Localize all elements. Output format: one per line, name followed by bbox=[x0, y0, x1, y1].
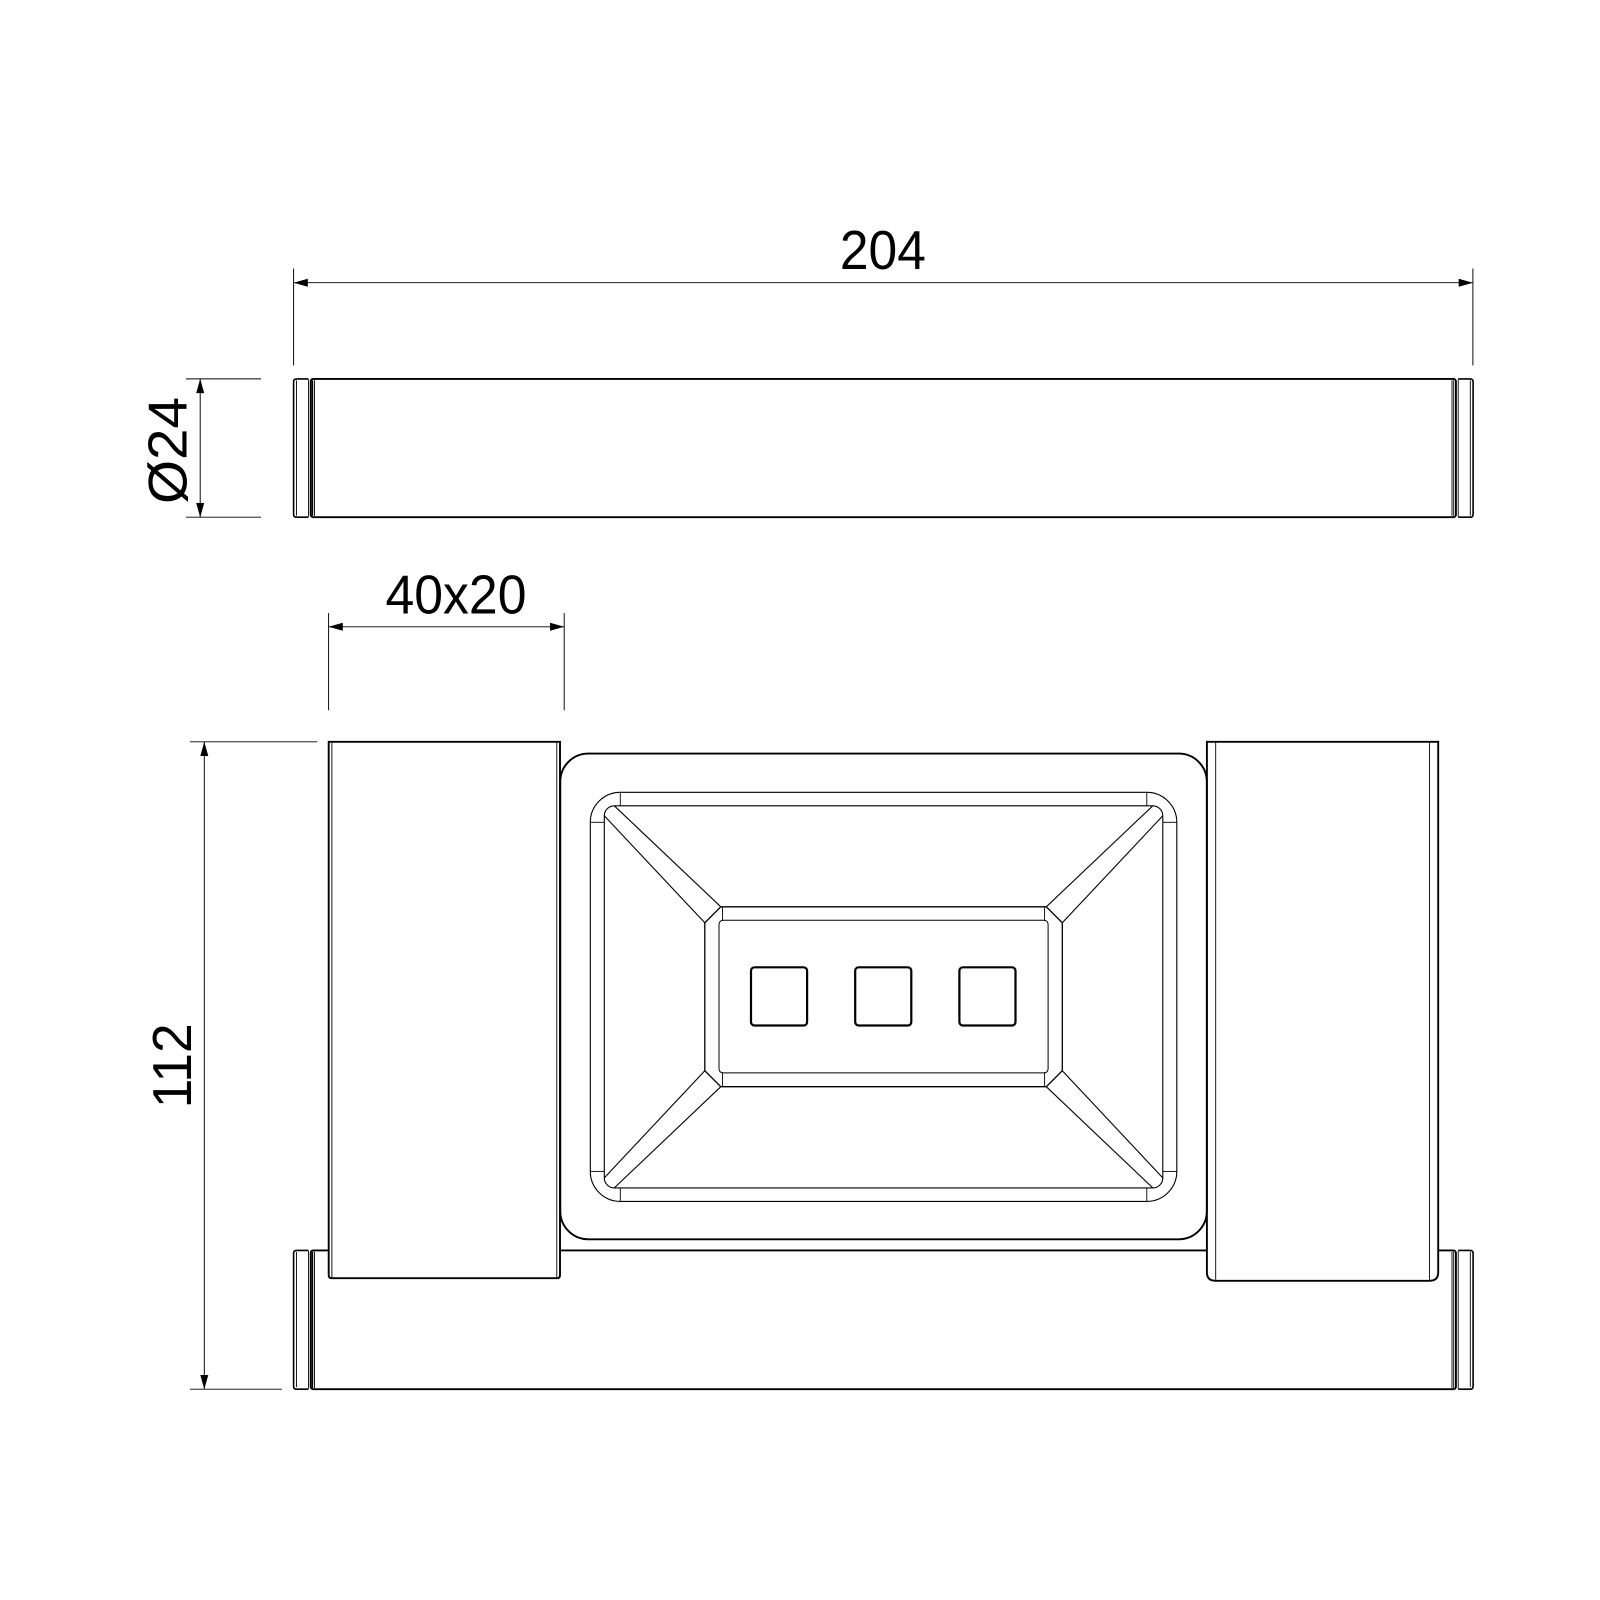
svg-text:Ø24: Ø24 bbox=[137, 397, 199, 504]
svg-text:112: 112 bbox=[141, 1023, 203, 1108]
svg-text:204: 204 bbox=[840, 219, 926, 281]
svg-text:40x20: 40x20 bbox=[386, 563, 527, 625]
